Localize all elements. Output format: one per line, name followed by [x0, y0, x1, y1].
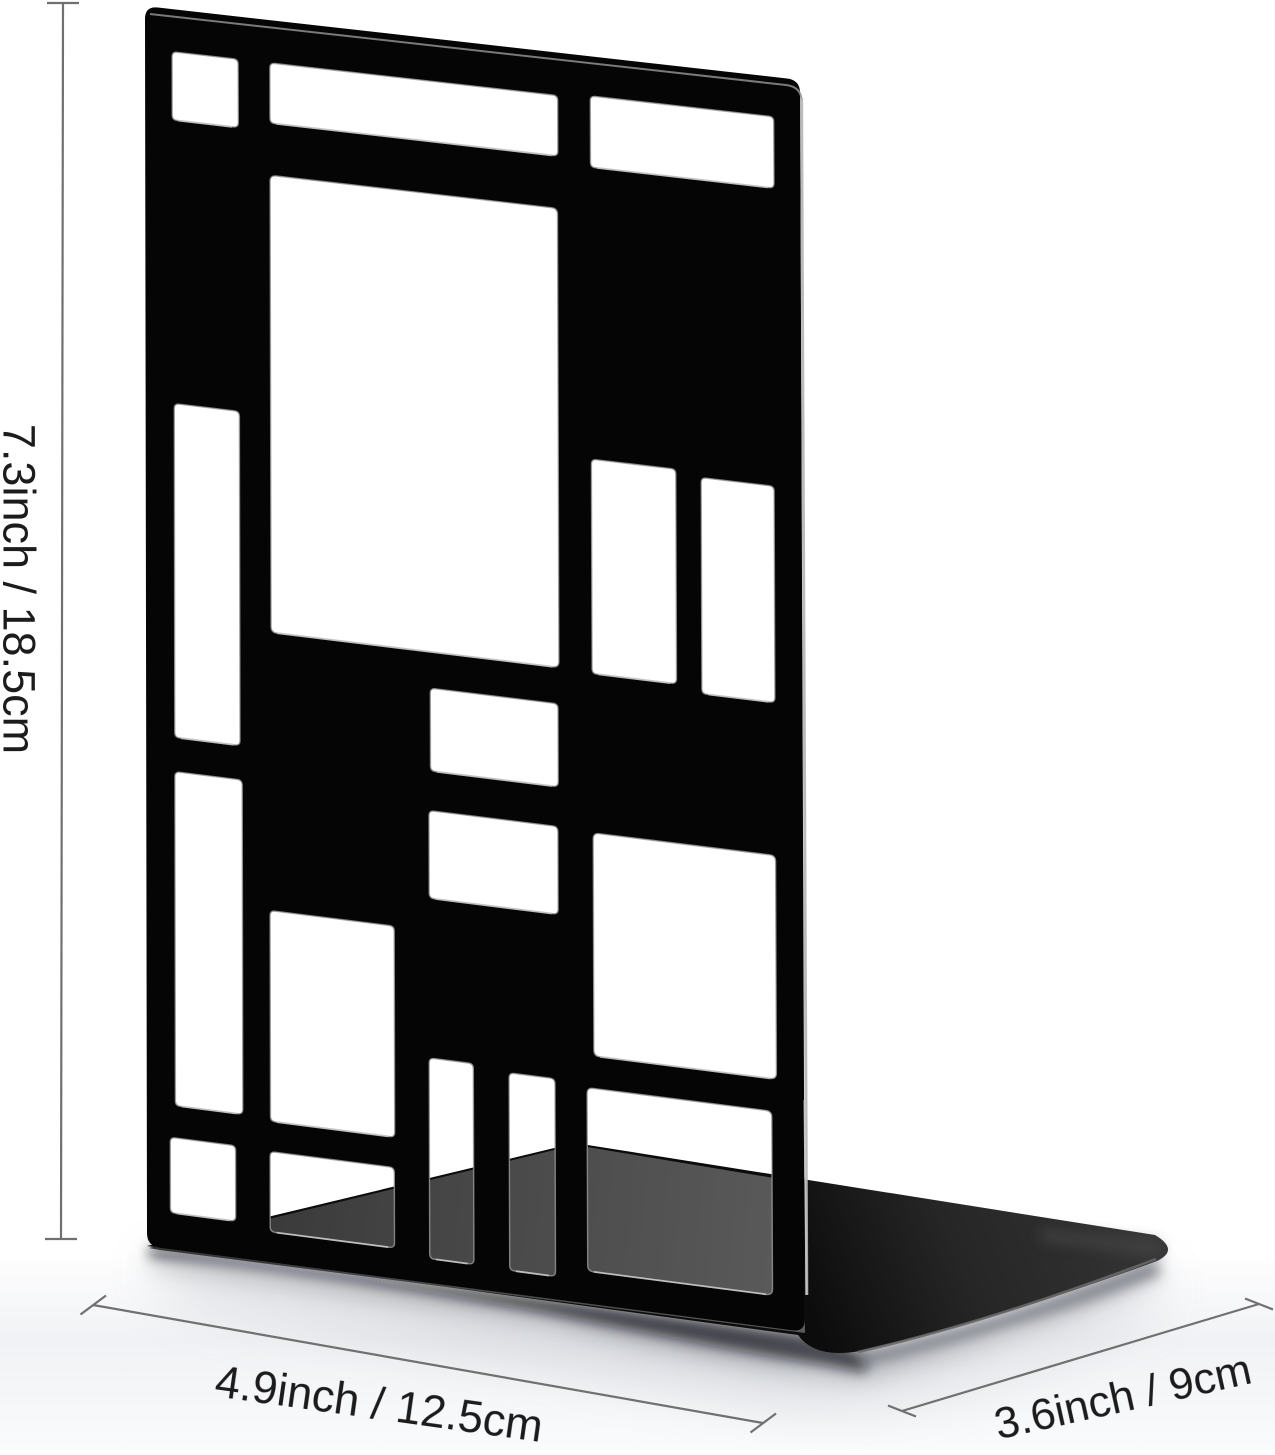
svg-text:7.3inch / 18.5cm: 7.3inch / 18.5cm: [0, 424, 45, 754]
